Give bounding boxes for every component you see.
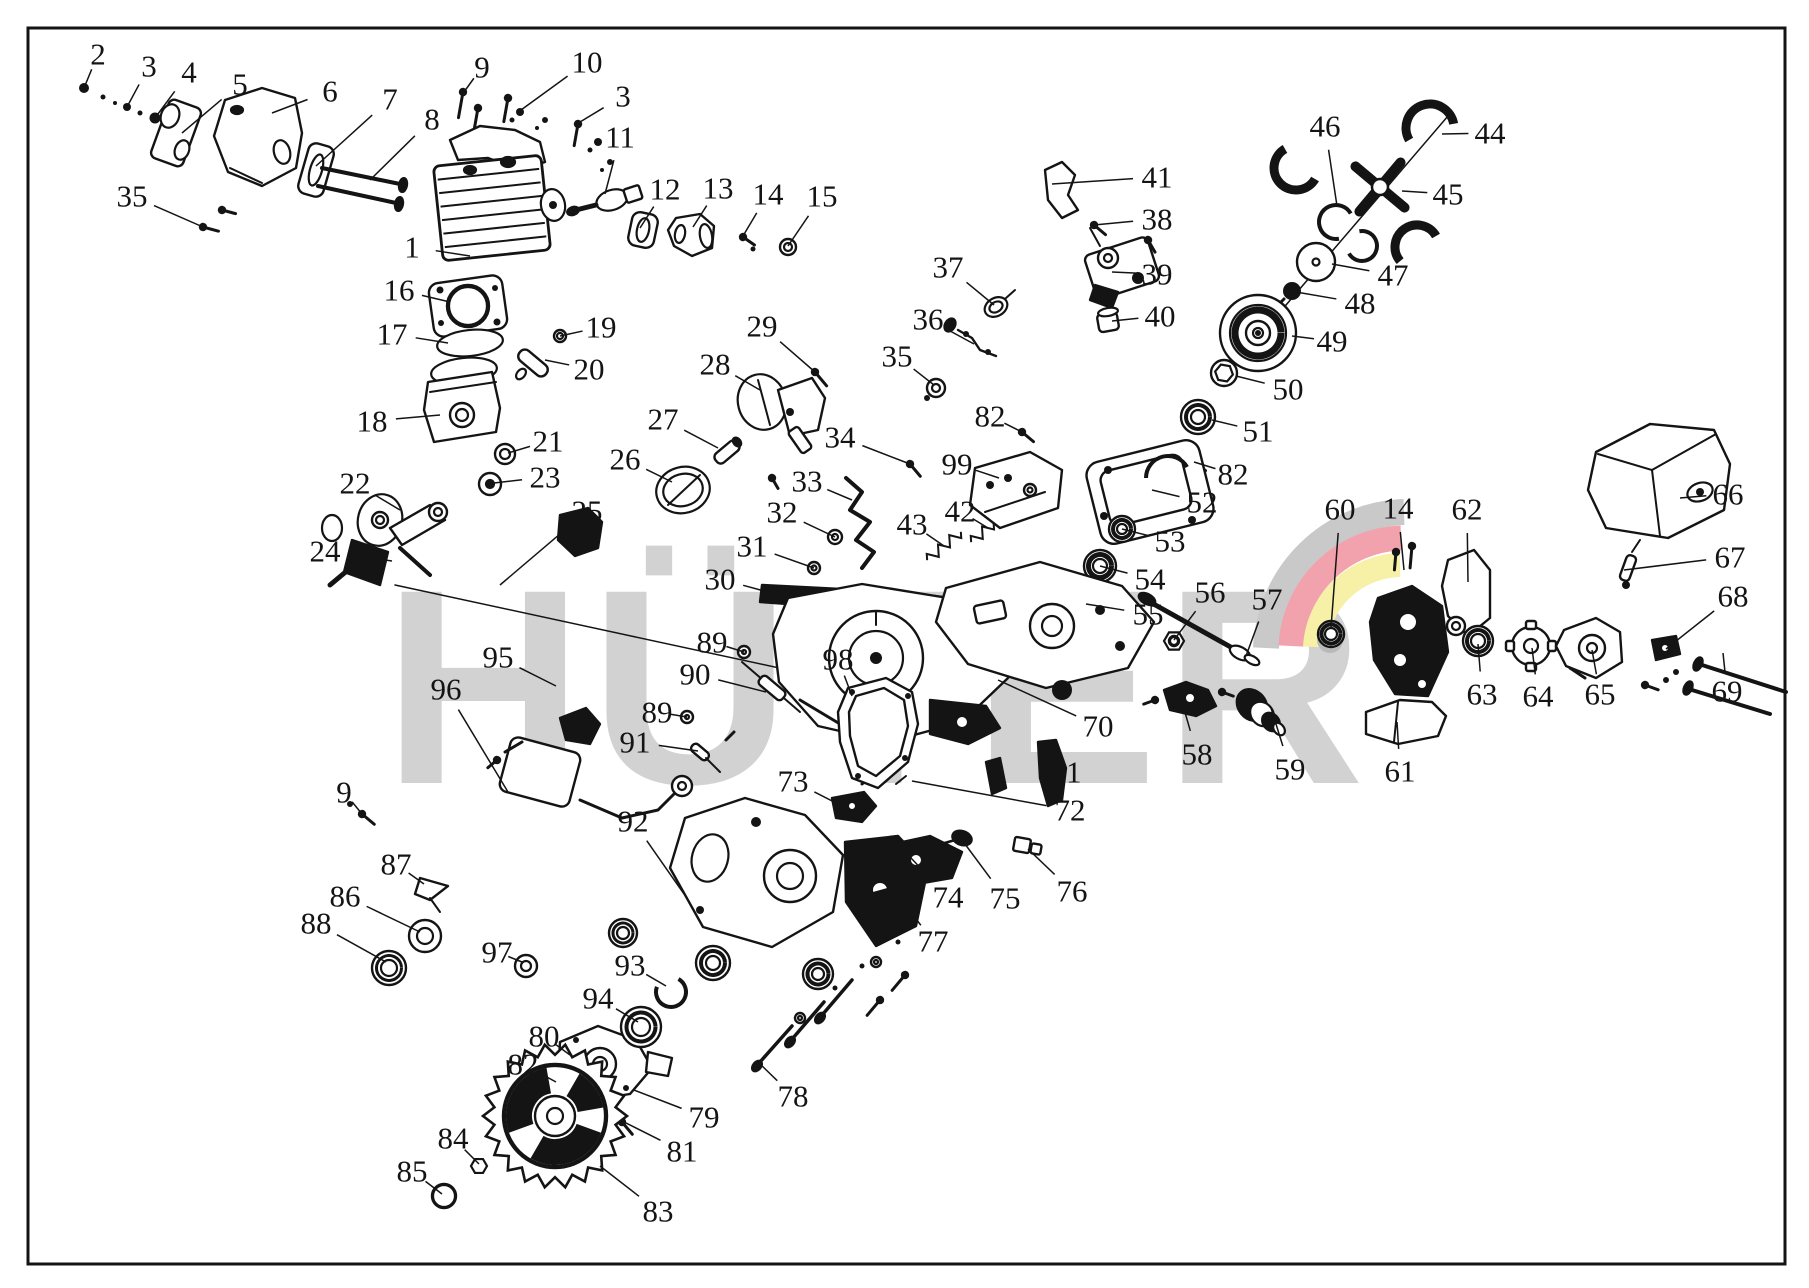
- part-label-71: 71: [1051, 755, 1082, 790]
- part-label-39: 39: [1142, 257, 1173, 292]
- part-label-13: 13: [703, 171, 734, 206]
- part-label-85: 85: [397, 1154, 428, 1189]
- leader-line: [580, 108, 604, 122]
- part-label-14: 14: [753, 177, 785, 212]
- leader-line: [316, 115, 372, 166]
- part-label-99: 99: [942, 447, 973, 482]
- part-label-69: 69: [1712, 674, 1743, 709]
- leader-line: [337, 935, 386, 962]
- part-label-76: 76: [1057, 874, 1088, 909]
- leader-line: [370, 136, 415, 180]
- part-label-2: 2: [90, 37, 106, 72]
- parts-diagram-canvas: HÜTER 2345678910311121314151161718192021…: [0, 0, 1809, 1283]
- part-label-49: 49: [1317, 324, 1348, 359]
- part-label-20: 20: [574, 352, 605, 387]
- leader-line: [1296, 292, 1336, 299]
- leader-line: [1666, 611, 1714, 649]
- leader-line: [1467, 533, 1468, 582]
- part-label-9: 9: [336, 775, 352, 810]
- part-label-64: 64: [1523, 679, 1555, 714]
- part-label-98: 98: [823, 642, 854, 677]
- part-label-48: 48: [1345, 286, 1376, 321]
- leader-line: [1400, 532, 1404, 570]
- part-label-1: 1: [404, 230, 420, 265]
- part-label-65: 65: [1585, 677, 1616, 712]
- part-label-83: 83: [643, 1194, 674, 1229]
- part-label-26: 26: [610, 442, 641, 477]
- part-label-87: 87: [381, 847, 412, 882]
- leader-line: [1212, 420, 1237, 426]
- leader-line: [600, 1166, 639, 1196]
- leader-line: [827, 490, 852, 500]
- part-label-36: 36: [913, 302, 944, 337]
- part-label-45: 45: [1433, 177, 1464, 212]
- part-label-6: 6: [322, 74, 338, 109]
- part-label-59: 59: [1275, 752, 1306, 787]
- leader-line: [684, 430, 718, 448]
- leader-line: [1442, 133, 1468, 134]
- part-label-22: 22: [340, 466, 371, 501]
- part-label-93: 93: [615, 948, 646, 983]
- part-label-33: 33: [792, 464, 823, 499]
- part-label-52: 52: [1187, 485, 1218, 520]
- part-label-42: 42: [945, 494, 976, 529]
- leader-line: [521, 76, 568, 110]
- part-label-12: 12: [650, 172, 681, 207]
- part-label-35: 35: [882, 339, 913, 374]
- part-label-38: 38: [1142, 202, 1173, 237]
- part-label-5: 5: [232, 67, 248, 102]
- part-label-43: 43: [897, 507, 928, 542]
- part-label-82: 82: [1218, 457, 1249, 492]
- part-label-58: 58: [1182, 737, 1213, 772]
- leader-line: [862, 446, 910, 464]
- part-label-30: 30: [705, 562, 736, 597]
- part-label-79: 79: [689, 1100, 720, 1135]
- part-label-54: 54: [1135, 562, 1167, 597]
- part-label-29: 29: [747, 309, 778, 344]
- part-label-9: 9: [474, 50, 490, 85]
- part-label-7: 7: [382, 82, 398, 117]
- part-label-31: 31: [737, 529, 768, 564]
- part-label-18: 18: [357, 404, 388, 439]
- part-label-70: 70: [1083, 709, 1114, 744]
- part-label-57: 57: [1252, 582, 1283, 617]
- part-label-41: 41: [1142, 160, 1173, 195]
- part-label-61: 61: [1385, 754, 1416, 789]
- part-label-19: 19: [586, 310, 617, 345]
- part-label-81: 81: [667, 1134, 698, 1169]
- part-label-46: 46: [1310, 109, 1341, 144]
- part-label-92: 92: [618, 804, 649, 839]
- part-label-62: 62: [1452, 492, 1483, 527]
- part-label-95: 95: [483, 640, 514, 675]
- part-label-11: 11: [605, 120, 635, 155]
- part-label-56: 56: [1195, 575, 1226, 610]
- part-label-21: 21: [533, 424, 564, 459]
- part-label-37: 37: [933, 250, 964, 285]
- part-label-77: 77: [918, 924, 949, 959]
- part-label-97: 97: [482, 935, 513, 970]
- part-label-78: 78: [778, 1079, 809, 1114]
- part-label-66: 66: [1713, 477, 1744, 512]
- part-label-34: 34: [825, 420, 857, 455]
- part-label-88: 88: [301, 906, 332, 941]
- part-label-82: 82: [975, 399, 1006, 434]
- part-label-50: 50: [1273, 372, 1304, 407]
- part-label-32: 32: [767, 495, 798, 530]
- part-label-51: 51: [1243, 414, 1274, 449]
- part-label-55: 55: [1133, 597, 1164, 632]
- leader-line: [1004, 423, 1022, 432]
- leader-line: [154, 206, 203, 227]
- leader-line: [967, 282, 994, 305]
- part-label-73: 73: [778, 764, 809, 799]
- part-label-63: 63: [1467, 677, 1498, 712]
- leader-line: [780, 342, 815, 372]
- part-label-68: 68: [1718, 579, 1749, 614]
- leader-line: [352, 802, 362, 814]
- leader-line: [788, 216, 809, 246]
- part-label-3: 3: [615, 79, 631, 114]
- leader-line: [1402, 191, 1427, 193]
- leader-line: [758, 1062, 777, 1081]
- part-label-10: 10: [572, 45, 603, 80]
- part-label-14: 14: [1383, 491, 1415, 526]
- leader-line: [1332, 264, 1369, 271]
- leader-line: [464, 78, 474, 92]
- leader-line: [634, 1090, 682, 1108]
- leader-line: [545, 360, 569, 365]
- part-label-89: 89: [697, 625, 728, 660]
- part-label-25: 25: [572, 494, 603, 529]
- part-label-96: 96: [431, 672, 462, 707]
- exploded-parts-diagram: HÜTER 2345678910311121314151161718192021…: [0, 0, 1809, 1283]
- leader-line: [1236, 376, 1265, 383]
- part-label-16: 16: [384, 273, 415, 308]
- part-label-75: 75: [990, 881, 1021, 916]
- leader-line: [914, 369, 934, 385]
- part-label-67: 67: [1715, 540, 1746, 575]
- part-label-74: 74: [933, 880, 965, 915]
- part-label-27: 27: [648, 402, 679, 437]
- part-label-72: 72: [1055, 793, 1086, 828]
- part-label-86: 86: [330, 879, 361, 914]
- part-label-91: 91: [620, 725, 651, 760]
- part-label-40: 40: [1145, 299, 1176, 334]
- part-label-4: 4: [181, 55, 197, 90]
- part-label-24: 24: [310, 534, 342, 569]
- part-label-44: 44: [1475, 116, 1507, 151]
- leader-line: [646, 974, 666, 986]
- part-label-23: 23: [530, 460, 561, 495]
- part-label-60: 60: [1325, 492, 1356, 527]
- part-label-53: 53: [1155, 524, 1186, 559]
- part-label-35: 35: [117, 179, 148, 214]
- part-label-47: 47: [1378, 258, 1409, 293]
- part-label-3: 3: [141, 49, 157, 84]
- part-label-17: 17: [377, 317, 408, 352]
- leader-line: [367, 906, 420, 932]
- part-label-28: 28: [700, 347, 731, 382]
- leader-line: [1329, 150, 1337, 206]
- leader-line: [1094, 221, 1133, 225]
- part-label-84: 84: [438, 1121, 470, 1156]
- part-label-82: 82: [508, 1047, 539, 1082]
- part-label-94: 94: [583, 981, 615, 1016]
- leader-line: [743, 213, 757, 236]
- part-label-90: 90: [680, 657, 711, 692]
- leader-line: [127, 84, 139, 107]
- part-label-8: 8: [424, 102, 440, 137]
- part-label-15: 15: [807, 179, 838, 214]
- leader-line: [962, 840, 991, 879]
